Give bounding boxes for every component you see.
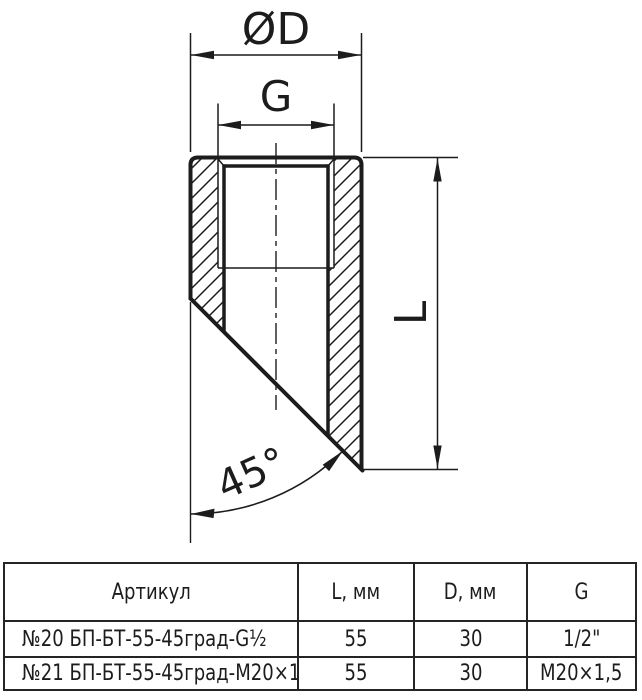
- technical-drawing-page: ØD G L 45°: [0, 0, 642, 700]
- fitting-section-drawing: ØD G L 45°: [0, 0, 642, 562]
- dim-diameter-arrow-right: [338, 51, 361, 59]
- dim-thread-arrow-left: [218, 121, 241, 129]
- spec-table: Артикул L, мм D, мм G №20 БП-БТ-55-45гра…: [3, 562, 637, 691]
- cell-thread-2: М20×1,5: [527, 657, 636, 690]
- cell-diameter-2: 30: [414, 657, 527, 690]
- col-header-length: L, мм: [298, 563, 414, 621]
- dim-diameter-arrow-left: [191, 51, 214, 59]
- dim-angle-arrow-top: [323, 451, 343, 471]
- col-header-article: Артикул: [4, 563, 298, 621]
- spec-table-wrap: Артикул L, мм D, мм G №20 БП-БТ-55-45гра…: [3, 562, 637, 691]
- spec-table-header-row: Артикул L, мм D, мм G: [4, 563, 636, 621]
- cell-length-1: 55: [298, 621, 414, 657]
- dim-thread: G: [218, 72, 334, 129]
- cell-article-1: №20 БП-БТ-55-45град-G½: [4, 621, 298, 657]
- dim-angle: 45°: [191, 302, 343, 543]
- dim-length-arrow-bottom: [433, 446, 441, 469]
- cell-length-2: 55: [298, 657, 414, 690]
- dim-thread-arrow-right: [311, 121, 334, 129]
- dim-length-arrow-top: [433, 159, 441, 182]
- table-row: №21 БП-БТ-55-45град-М20×1,5 55 30 М20×1,…: [4, 657, 636, 690]
- dim-angle-arrow-bottom: [191, 509, 215, 518]
- cell-article-2: №21 БП-БТ-55-45град-М20×1,5: [4, 657, 298, 690]
- dim-angle-label: 45°: [210, 439, 293, 510]
- table-row: №20 БП-БТ-55-45град-G½ 55 30 1/2": [4, 621, 636, 657]
- dim-length-label: L: [386, 300, 437, 325]
- cell-thread-1: 1/2": [527, 621, 636, 657]
- cell-diameter-1: 30: [414, 621, 527, 657]
- col-header-diameter: D, мм: [414, 563, 527, 621]
- col-header-thread: G: [527, 563, 636, 621]
- dim-thread-label: G: [260, 72, 293, 121]
- hatch-right-wall: [328, 158, 362, 470]
- dim-length: L: [362, 158, 458, 470]
- dim-diameter-label: ØD: [242, 4, 311, 55]
